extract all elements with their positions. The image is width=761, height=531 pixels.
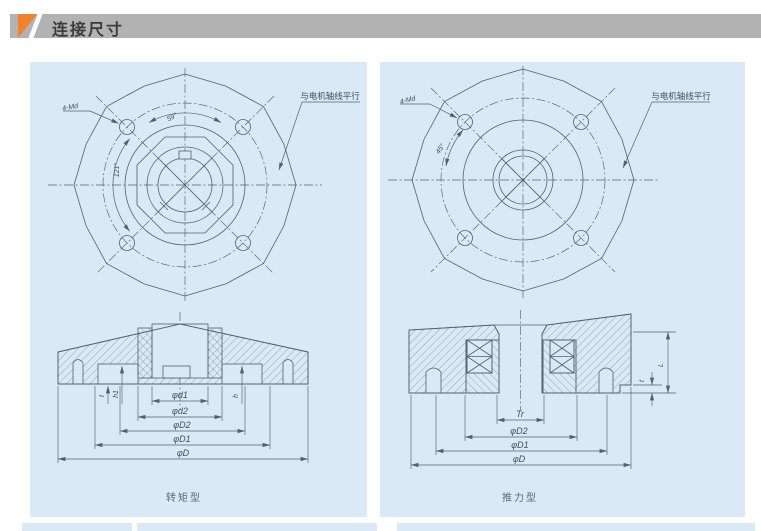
axis-note-label: 与电机轴线平行 <box>651 91 711 101</box>
keyway <box>179 151 191 159</box>
axis-note-leader <box>623 102 710 168</box>
dim-D2-label: φD2 <box>510 426 527 436</box>
table-header-cell-1 <box>22 523 132 531</box>
dim-D-label: φD <box>513 454 526 464</box>
right-caption: 推力型 <box>502 491 538 504</box>
bolt-slot-left <box>73 360 83 385</box>
bolt-slot-left <box>426 368 441 393</box>
bolt-slot-right <box>283 360 293 385</box>
angle-top-label: 59° <box>166 111 179 123</box>
dim-h-label: h <box>233 394 240 398</box>
dim-Tr-label: Tr <box>516 409 525 419</box>
dim-d2-label: φd2 <box>172 406 188 416</box>
hub-wall-right <box>208 328 222 378</box>
page-title: 连接尺寸 <box>52 16 124 40</box>
hub-wall-left <box>138 328 152 378</box>
flange-top-view <box>48 68 360 302</box>
left-groove <box>98 364 138 384</box>
bolt-hole-leader <box>400 104 457 118</box>
table-header-cell-3 <box>397 523 755 531</box>
left-drawing-panel: 4-Md 59° 121° 与电机轴线平行 t h1 h φd1 φd2 φD2… <box>30 62 367 517</box>
dim-h1-label: h1 <box>113 390 120 398</box>
dim-D1-label: φD1 <box>511 440 528 450</box>
bolt-slot-right <box>599 368 613 393</box>
right-drawing-panel: 4-Md 45° 与电机轴线平行 Tr φD2 φD1 φD L t 推力型 <box>380 62 745 517</box>
key-boss <box>163 366 190 378</box>
axis-note-leader <box>279 102 360 170</box>
thread-box-right <box>550 340 574 373</box>
dim-D1-label: φD1 <box>173 434 190 444</box>
dim-d1-label: φd1 <box>172 390 188 400</box>
dim-D2-label: φD2 <box>173 420 190 430</box>
catalog-page: 连接尺寸 <box>0 0 761 531</box>
table-header-cell-2 <box>137 523 377 531</box>
dim-t-label: t <box>99 394 106 397</box>
left-drawing-labels: 4-Md 59° 121° 与电机轴线平行 t h1 h φd1 φd2 φD2… <box>62 91 361 504</box>
dim-D-label: φD <box>177 448 190 458</box>
angle-label: 45° <box>434 142 447 155</box>
thrust-type-drawing: 4-Md 45° 与电机轴线平行 Tr φD2 φD1 φD L t 推力型 <box>380 62 745 517</box>
torque-type-drawing: 4-Md 59° 121° 与电机轴线平行 t h1 h φd1 φd2 φD2… <box>30 62 367 517</box>
axis-note-label: 与电机轴线平行 <box>300 91 360 101</box>
flange-section-view <box>409 310 676 469</box>
dim-L-label: L <box>658 363 665 367</box>
centerlines <box>388 66 660 298</box>
angle-side-label: 121° <box>113 163 121 178</box>
thread-box-left <box>467 340 492 373</box>
dim-t-label: t <box>639 379 646 382</box>
bolt-hole-leader <box>63 111 119 123</box>
right-drawing-labels: 4-Md 45° 与电机轴线平行 Tr φD2 φD1 φD L t 推力型 <box>399 91 711 504</box>
left-caption: 转矩型 <box>166 491 202 504</box>
